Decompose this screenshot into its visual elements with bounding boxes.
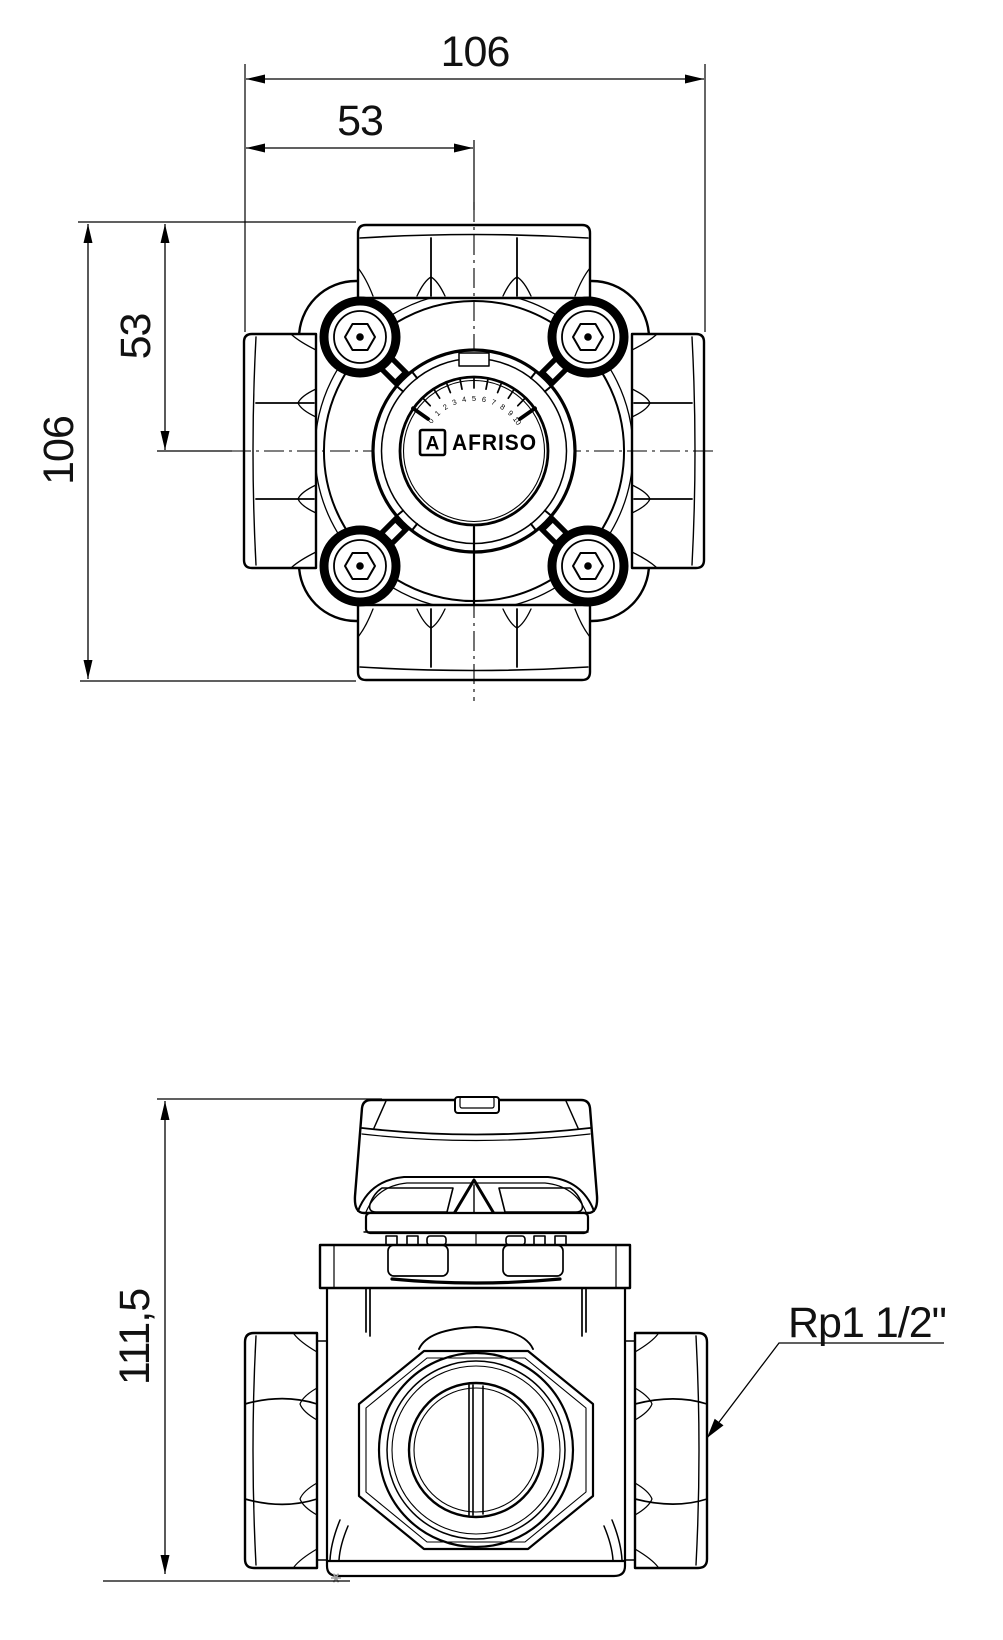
dim-label-width-total: 106 xyxy=(441,28,510,76)
front-right-hex-nut xyxy=(625,1333,707,1568)
dial-knob: 012345678910 A AFRISO xyxy=(373,350,575,605)
boss-dome-arc xyxy=(419,1327,533,1349)
handle-knob xyxy=(355,1097,597,1222)
dim-height-106: 106 xyxy=(35,224,93,679)
dial-scale-label: 5 xyxy=(472,394,476,403)
technical-drawing-page: 012345678910 A AFRISO xyxy=(0,0,1003,1640)
dim-height-53: 53 xyxy=(112,224,170,450)
dim-label-width-half: 53 xyxy=(337,97,383,145)
knob-collar xyxy=(366,1213,588,1233)
dim-label-front-height: 111,5 xyxy=(111,1289,159,1385)
dim-width-106: 106 xyxy=(246,28,704,84)
valve-drawing: 012345678910 A AFRISO xyxy=(0,0,1003,1640)
front-view xyxy=(245,1097,707,1582)
bolt-top-left xyxy=(324,301,396,373)
plug-slot xyxy=(469,1385,483,1515)
boss-octagon xyxy=(359,1351,593,1549)
dial-logo: A AFRISO xyxy=(420,430,537,455)
afriso-brand-text: AFRISO xyxy=(452,430,537,455)
front-left-hex-nut xyxy=(245,1333,327,1568)
bolt-bottom-left xyxy=(324,530,396,602)
bolt-top-right xyxy=(552,301,624,373)
thread-callout: Rp1 1/2" xyxy=(707,1299,946,1438)
dim-label-height-half: 53 xyxy=(112,314,160,360)
valve-body-front xyxy=(327,1288,625,1576)
dim-width-53: 53 xyxy=(246,97,473,153)
port-circles xyxy=(379,1353,573,1547)
dim-label-height-total: 106 xyxy=(35,416,83,485)
base-plate xyxy=(327,1561,625,1576)
thread-size-label: Rp1 1/2" xyxy=(788,1299,946,1347)
handle-top-notch xyxy=(455,1097,499,1113)
bonnet-plate xyxy=(320,1245,630,1288)
dim-front-height-111-5: 111,5 xyxy=(111,1101,170,1574)
knob-top-notch xyxy=(459,353,489,366)
afriso-logo-letter: A xyxy=(426,434,440,455)
top-view: 012345678910 A AFRISO xyxy=(231,202,717,701)
bolt-bottom-right xyxy=(552,530,624,602)
